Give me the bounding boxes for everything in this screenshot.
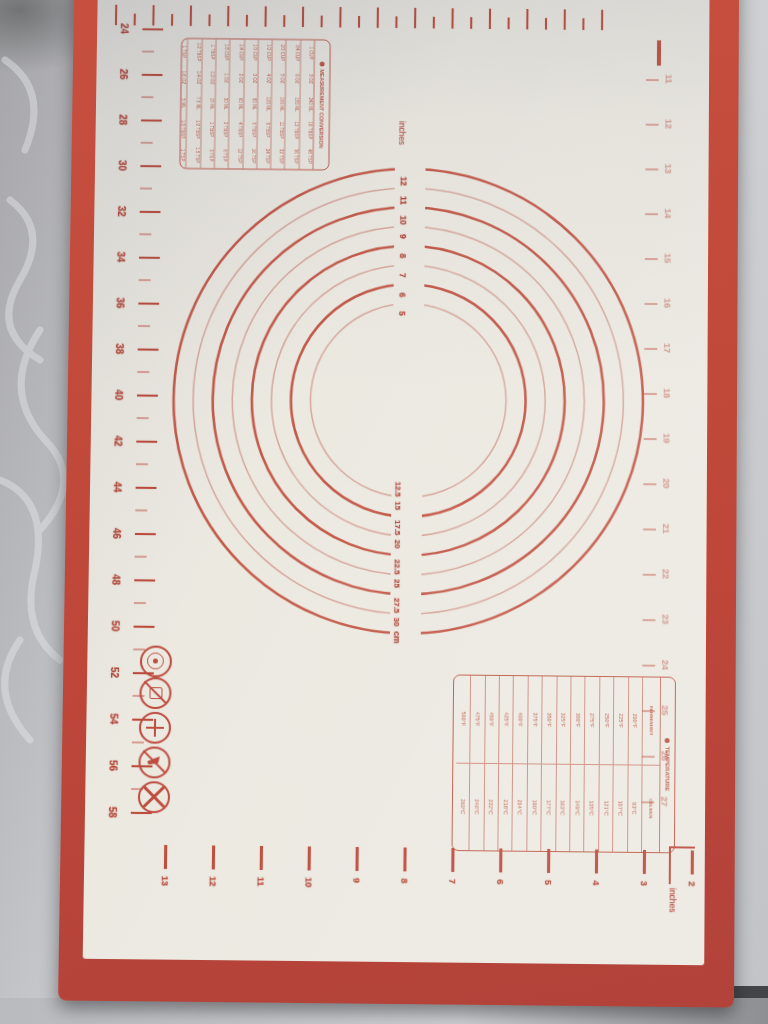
left-ruler-number: 34 bbox=[115, 252, 126, 263]
measurement-cell: 4 OZ bbox=[258, 65, 271, 91]
measurement-cell: 2/3 CUP bbox=[273, 40, 286, 66]
left-ruler-number: 24 bbox=[119, 23, 130, 34]
left-ruler-halftick bbox=[133, 648, 145, 650]
measurement-cell: 16 TBSP bbox=[300, 117, 313, 143]
right-ruler-tick bbox=[643, 574, 656, 576]
measurement-row: 1 TBSP1/2 OZ15 ML1 TBSP3 TSP bbox=[200, 39, 216, 168]
right-ruler-number: 15 bbox=[663, 253, 673, 263]
top-ruler-tick bbox=[283, 15, 285, 27]
left-ruler-tick bbox=[141, 119, 162, 122]
temperature-row: 500°F260°C bbox=[455, 675, 470, 850]
circles-unit-inches-label: inches bbox=[397, 121, 407, 145]
circle-cm-label: 15 bbox=[393, 501, 402, 510]
temperature-cell: 500°F bbox=[456, 675, 470, 763]
circle-cm-label: 30 bbox=[392, 618, 401, 627]
temperature-row: 450°F232°C bbox=[483, 676, 499, 851]
left-ruler-number: 30 bbox=[117, 160, 128, 171]
bottom-ruler-number: 12 bbox=[208, 876, 218, 886]
bottom-ruler-number: 6 bbox=[495, 879, 505, 884]
measurement-cell: 16 TSP bbox=[243, 143, 256, 169]
temperature-cell: 107°C bbox=[613, 765, 627, 852]
top-ruler-tick bbox=[321, 16, 323, 28]
left-ruler-halftick bbox=[135, 556, 147, 558]
measurement-row: 1 CUP8 OZ240 ML16 TBSP48 TSP bbox=[298, 40, 314, 169]
temperature-cell: 93°C bbox=[628, 765, 642, 852]
left-ruler-tick bbox=[131, 765, 152, 768]
bottom-ruler-tick bbox=[164, 845, 167, 869]
left-ruler-number: 56 bbox=[108, 760, 119, 771]
top-ruler-tick bbox=[601, 10, 603, 30]
top-ruler-tick bbox=[564, 9, 566, 29]
temperature-cell: 190°C bbox=[527, 764, 541, 851]
measurement-cell: 24 TSP bbox=[257, 143, 270, 169]
top-ruler-tick bbox=[489, 9, 491, 29]
right-ruler-tick bbox=[643, 528, 656, 530]
bottom-ruler-number: 5 bbox=[543, 880, 553, 885]
top-ruler-tick bbox=[377, 7, 379, 27]
top-ruler-end-mark bbox=[657, 40, 661, 65]
temperature-row: 250°F121°C bbox=[598, 677, 614, 852]
top-ruler-tick bbox=[302, 7, 304, 27]
measurement-cell: 3/4 CUP bbox=[287, 40, 300, 66]
right-ruler-tick bbox=[642, 710, 655, 712]
temperature-cell: 149°C bbox=[570, 764, 584, 851]
temperature-row: 475°F246°C bbox=[469, 676, 485, 851]
bottom-ruler-tick bbox=[355, 847, 358, 871]
measurement-row: 2/3 CUP5 OZ160 ML11 TBSP32 TSP bbox=[270, 40, 286, 169]
temperature-row: 375°F190°C bbox=[526, 676, 542, 851]
top-ruler-tick bbox=[265, 6, 267, 26]
right-ruler-number: 18 bbox=[662, 388, 672, 398]
left-ruler-halftick bbox=[139, 233, 151, 235]
top-ruler-tick bbox=[171, 14, 173, 26]
temperature-cell: 121°C bbox=[599, 765, 613, 852]
left-ruler-halftick bbox=[135, 509, 147, 511]
temperature-cell: 325°F bbox=[557, 677, 571, 765]
measurement-cell: 1 TBSP bbox=[201, 116, 214, 142]
measurement-cell: 1/4 OZ bbox=[188, 65, 201, 91]
right-ruler-number: 11 bbox=[664, 74, 674, 83]
temperature-row: 275°F135°C bbox=[584, 677, 600, 852]
left-ruler-tick bbox=[140, 211, 161, 214]
left-ruler-number: 36 bbox=[115, 297, 126, 308]
circle-cm-label: 25 bbox=[392, 579, 401, 588]
top-ruler-tick bbox=[545, 18, 547, 30]
right-ruler-tick bbox=[645, 258, 658, 260]
right-ruler-number: 17 bbox=[662, 343, 672, 353]
left-ruler-tick bbox=[134, 626, 155, 629]
left-ruler-tick bbox=[136, 487, 157, 490]
top-ruler-tick bbox=[414, 8, 416, 28]
left-ruler-tick bbox=[131, 812, 152, 815]
bottom-ruler-number: 7 bbox=[447, 879, 457, 884]
right-ruler-tick bbox=[644, 393, 657, 395]
right-ruler-number: 16 bbox=[662, 298, 672, 308]
right-ruler-tick bbox=[643, 619, 656, 621]
right-ruler-tick bbox=[644, 438, 657, 440]
bottom-ruler-unit-label: inches bbox=[668, 888, 678, 913]
right-ruler-number: 14 bbox=[663, 208, 673, 218]
left-ruler-number: 52 bbox=[109, 667, 120, 678]
right-ruler-number: 25 bbox=[660, 705, 670, 715]
top-ruler-tick bbox=[208, 14, 210, 26]
left-ruler-number: 54 bbox=[108, 713, 119, 724]
circle-cm-label: 20 bbox=[393, 540, 402, 549]
circle-inch-label: 7 bbox=[398, 273, 408, 278]
bottom-ruler-tick bbox=[308, 847, 311, 871]
left-ruler-halftick bbox=[137, 417, 149, 419]
circle-inch-label: 10 bbox=[398, 215, 408, 224]
temperature-cell: 218°C bbox=[498, 764, 512, 851]
measurement-cell: 1.5 TSP bbox=[187, 142, 200, 168]
measurement-cell: 1/2 OZ bbox=[202, 65, 215, 91]
mat-field: inches cm MEASUREMENT CONVERSION 1 CUP8 … bbox=[83, 0, 710, 965]
temperature-cell: 163°C bbox=[556, 764, 570, 851]
measurement-table-title-row: MEASUREMENT CONVERSION bbox=[313, 40, 330, 169]
measurement-cell: 32 TSP bbox=[271, 143, 284, 169]
temperature-cell: 232°C bbox=[484, 763, 498, 850]
top-ruler-tick bbox=[582, 18, 584, 30]
left-ruler-tick bbox=[135, 533, 156, 536]
measurement-row: 1/2 CUP4 OZ120 ML8 TBSP24 TSP bbox=[256, 40, 272, 169]
circle-inch-label: 6 bbox=[397, 292, 407, 297]
measurement-cell: 160 ML bbox=[272, 91, 285, 117]
measurement-cell: 1/3 TBSP bbox=[173, 116, 186, 142]
left-ruler-tick bbox=[132, 719, 153, 722]
measurement-row: 1/4 CUP2 OZ60 ML4 TBSP12 TSP bbox=[228, 39, 244, 168]
measurement-cell: 240 ML bbox=[300, 92, 313, 118]
left-ruler-number: 38 bbox=[114, 343, 125, 354]
cup-icon bbox=[320, 61, 325, 66]
bottom-ruler-number: 10 bbox=[303, 877, 313, 887]
left-ruler-number: 46 bbox=[111, 528, 122, 539]
top-ruler-tick bbox=[152, 5, 154, 25]
temperature-cell: 246°C bbox=[470, 763, 484, 850]
left-ruler-number: 58 bbox=[107, 807, 118, 818]
top-ruler-tick bbox=[470, 17, 472, 29]
temperature-cell: 375°F bbox=[528, 676, 542, 764]
bottom-ruler-number: 9 bbox=[351, 878, 361, 883]
temperature-table-body: 200°F93°C225°F107°C250°F121°C275°F135°C3… bbox=[455, 675, 642, 851]
measurement-cell: 7.5 ML bbox=[187, 91, 200, 117]
circles-unit-cm-label: cm bbox=[392, 631, 402, 643]
temperature-row: 200°F93°C bbox=[627, 677, 642, 852]
measurement-cell: 60 ML bbox=[230, 91, 243, 117]
measurement-table-body: 1 CUP8 OZ240 ML16 TBSP48 TSP3/4 CUP6 OZ1… bbox=[172, 39, 314, 170]
temperature-cell: 475°F bbox=[471, 676, 485, 764]
top-ruler-tick bbox=[339, 7, 341, 27]
measurement-cell: 1/8 CUP bbox=[216, 39, 229, 65]
measurement-cell: 5 ML bbox=[173, 90, 186, 116]
temperature-cell: 225°F bbox=[614, 677, 628, 765]
corner-bracket-horizontal bbox=[669, 846, 695, 849]
left-ruler-tick bbox=[136, 441, 157, 444]
temperature-cell: 275°F bbox=[585, 677, 599, 765]
temperature-table: TEMPERATURE FAHRENHEIT CELSIUS 200°F93°C… bbox=[451, 674, 675, 853]
bottom-ruler-tick bbox=[499, 849, 502, 873]
circle-inch-label: 9 bbox=[398, 234, 408, 239]
right-ruler-number: 27 bbox=[659, 797, 669, 807]
measurement-cell: 6 TSP bbox=[215, 142, 228, 168]
top-ruler-tick bbox=[395, 16, 397, 28]
pastry-mat: inches cm MEASUREMENT CONVERSION 1 CUP8 … bbox=[58, 0, 739, 1008]
measurement-table-title: MEASUREMENT CONVERSION bbox=[318, 69, 325, 148]
right-ruler-number: 12 bbox=[663, 119, 673, 129]
measurement-cell: 1 TSP bbox=[172, 142, 185, 168]
corner-bracket-vertical bbox=[669, 846, 672, 884]
left-ruler-tick bbox=[140, 165, 161, 168]
right-ruler-tick bbox=[646, 79, 659, 81]
measurement-cell: 1/4 CUP bbox=[230, 39, 243, 65]
temperature-row: 325°F163°C bbox=[555, 677, 571, 852]
right-ruler-tick bbox=[643, 483, 656, 485]
top-ruler-tick bbox=[190, 6, 192, 26]
left-ruler-number: 42 bbox=[112, 435, 123, 446]
left-ruler-halftick bbox=[132, 741, 144, 743]
right-ruler-number: 22 bbox=[661, 569, 671, 579]
measurement-cell: 48 TSP bbox=[299, 143, 312, 169]
measurement-cell: 6 OZ bbox=[286, 66, 299, 92]
top-ruler-tick bbox=[451, 8, 453, 28]
bottom-ruler-number: 3 bbox=[639, 881, 649, 886]
bottom-ruler-number: 8 bbox=[399, 878, 409, 883]
top-ruler-tick bbox=[508, 18, 510, 30]
measurement-row: 1/3 CUP3 OZ80 ML5 TBSP16 TSP bbox=[242, 40, 258, 169]
left-ruler-tick bbox=[139, 257, 160, 260]
measurement-cell: 180 ML bbox=[286, 92, 299, 118]
top-ruler-tick bbox=[115, 5, 117, 25]
bottom-ruler-tick bbox=[403, 848, 406, 872]
measurement-table: MEASUREMENT CONVERSION 1 CUP8 OZ240 ML16… bbox=[179, 38, 330, 171]
bottom-ruler-number: 13 bbox=[160, 876, 170, 886]
measurement-cell: 1/2 TBSP bbox=[188, 39, 201, 65]
right-ruler-tick bbox=[645, 168, 658, 170]
temperature-cell: 450°F bbox=[485, 676, 499, 764]
left-ruler-tick bbox=[137, 395, 158, 398]
top-ruler-tick bbox=[227, 6, 229, 26]
left-ruler-tick bbox=[142, 74, 163, 77]
temperature-cell: 300°F bbox=[571, 677, 585, 765]
right-ruler-number: 21 bbox=[661, 524, 671, 534]
bottom-ruler-tick bbox=[260, 846, 263, 870]
bottom-ruler-number: 2 bbox=[687, 881, 697, 886]
temperature-row: 425°F218°C bbox=[497, 676, 513, 851]
measurement-cell: 15 ML bbox=[201, 91, 214, 117]
right-ruler-number: 20 bbox=[661, 478, 671, 488]
thermometer-icon bbox=[665, 738, 670, 743]
measurement-cell: 12 TSP bbox=[229, 143, 242, 169]
bottom-ruler-tick bbox=[595, 850, 598, 874]
circle-inch-label: 5 bbox=[397, 311, 407, 316]
right-ruler-number: 13 bbox=[663, 164, 673, 174]
circle-inch-label: 12 bbox=[399, 177, 409, 186]
prohibition-x-icon bbox=[138, 781, 170, 813]
measurement-row: 3/4 CUP6 OZ180 ML12 TBSP36 TSP bbox=[284, 40, 300, 169]
right-ruler-tick bbox=[641, 801, 654, 803]
measurement-cell: 1/2 TBSP bbox=[187, 116, 200, 142]
left-ruler-halftick bbox=[138, 325, 150, 327]
measurement-cell: 36 TSP bbox=[285, 143, 298, 169]
left-ruler-number: 40 bbox=[113, 389, 124, 400]
measurement-cell: 11 TBSP bbox=[272, 117, 285, 143]
circle-cm-label: 27.5 bbox=[392, 598, 401, 613]
right-ruler-number: 19 bbox=[661, 433, 671, 443]
measurement-cell: 8 OZ bbox=[300, 66, 313, 92]
top-ruler-tick bbox=[526, 9, 528, 29]
measurement-cell: 80 ML bbox=[244, 91, 257, 117]
bottom-ruler-tick bbox=[451, 848, 454, 872]
temperature-row: 225°F107°C bbox=[612, 677, 628, 852]
measurement-row: 1/8 CUP1 OZ30 ML2 TBSP6 TSP bbox=[214, 39, 230, 168]
measurement-cell: 5 TBSP bbox=[243, 117, 256, 143]
circle-inch-label: 8 bbox=[398, 253, 408, 258]
right-ruler-tick bbox=[642, 665, 655, 667]
left-ruler-number: 26 bbox=[118, 69, 129, 80]
top-ruler-tick bbox=[433, 17, 435, 29]
no-knife-icon bbox=[138, 746, 170, 778]
measurement-cell: 4 TBSP bbox=[229, 117, 242, 143]
circle-cm-label: 17.5 bbox=[393, 520, 402, 535]
temperature-cell: 135°C bbox=[585, 764, 599, 851]
circle-inch-label: 11 bbox=[398, 196, 408, 205]
left-ruler-halftick bbox=[137, 371, 149, 373]
temperature-cell: 260°C bbox=[455, 763, 469, 850]
left-ruler-halftick bbox=[136, 463, 148, 465]
left-ruler-tick bbox=[134, 579, 155, 582]
measurement-cell: 3 OZ bbox=[244, 65, 257, 91]
measurement-row: 1/2 TBSP1/4 OZ7.5 ML1/2 TBSP1.5 TSP bbox=[186, 39, 202, 168]
top-ruler-tick bbox=[134, 14, 136, 26]
left-ruler-tick bbox=[138, 303, 159, 306]
bottom-ruler-tick bbox=[547, 849, 550, 873]
temperature-row: 300°F149°C bbox=[569, 677, 585, 852]
bottom-ruler-tick bbox=[212, 846, 215, 870]
bottom-ruler-number: 4 bbox=[591, 880, 601, 885]
right-ruler-tick bbox=[646, 124, 659, 126]
top-ruler-tick bbox=[246, 15, 248, 27]
left-ruler-halftick bbox=[141, 142, 153, 144]
bottom-ruler-tick bbox=[691, 851, 694, 875]
right-ruler-number: 23 bbox=[660, 614, 670, 624]
temperature-row: 350°F177°C bbox=[541, 676, 557, 851]
celsius-header: CELSIUS bbox=[642, 765, 659, 852]
temperature-cell: 400°F bbox=[514, 676, 528, 764]
left-ruler-number: 48 bbox=[110, 574, 121, 585]
measurement-cell: 1 TSP bbox=[174, 39, 187, 65]
measurement-cell: 5 OZ bbox=[272, 66, 285, 92]
temperature-row: 400°F204°C bbox=[512, 676, 528, 851]
circle-cm-label: 12.5 bbox=[393, 481, 402, 496]
no-bakeware-icon bbox=[139, 677, 171, 709]
measurement-cell: 1 TBSP bbox=[202, 39, 215, 65]
right-ruler-number: 24 bbox=[660, 660, 670, 670]
measurement-cell: 3 TSP bbox=[201, 142, 214, 168]
measurement-cell: 30 ML bbox=[215, 91, 228, 117]
measurement-cell: 8 TBSP bbox=[257, 117, 270, 143]
left-ruler-halftick bbox=[134, 602, 146, 604]
measurement-cell: 12 TBSP bbox=[286, 117, 299, 143]
measurement-cell: 2 TBSP bbox=[215, 117, 228, 143]
measurement-cell: 2 OZ bbox=[230, 65, 243, 91]
measurement-cell: 1/2 CUP bbox=[258, 40, 271, 66]
measurement-cell: 1/6 OZ bbox=[174, 65, 187, 91]
left-ruler-halftick bbox=[141, 96, 153, 98]
right-ruler-tick bbox=[645, 303, 658, 305]
measurement-cell: 1 CUP bbox=[301, 40, 314, 66]
photo-of-pastry-mat: inches cm MEASUREMENT CONVERSION 1 CUP8 … bbox=[0, 0, 768, 1024]
left-ruler-number: 50 bbox=[110, 620, 121, 631]
bottom-ruler-tick bbox=[643, 850, 646, 874]
left-ruler-halftick bbox=[139, 279, 151, 281]
circle-cm-label: 22.5 bbox=[393, 559, 402, 574]
left-ruler-number: 32 bbox=[116, 206, 127, 217]
temperature-cell: 350°F bbox=[542, 676, 556, 764]
measurement-cell: 1 OZ bbox=[216, 65, 229, 91]
measurement-cell: 1/3 CUP bbox=[244, 40, 257, 66]
fahrenheit-header: FAHRENHEIT bbox=[643, 677, 660, 765]
right-ruler-tick bbox=[644, 348, 657, 350]
left-ruler-halftick bbox=[142, 51, 154, 53]
left-ruler-tick bbox=[142, 28, 163, 31]
temperature-cell: 177°C bbox=[542, 764, 556, 851]
right-ruler-tick bbox=[645, 213, 658, 215]
left-ruler-number: 28 bbox=[117, 114, 128, 125]
temperature-table-title-row: TEMPERATURE bbox=[659, 678, 675, 853]
bottom-ruler-number: 11 bbox=[255, 877, 265, 887]
measurement-row: 1 TSP1/6 OZ5 ML1/3 TBSP1 TSP bbox=[172, 39, 187, 168]
whisk-icon bbox=[139, 712, 171, 744]
temperature-cell: 250°F bbox=[600, 677, 614, 765]
left-ruler-number: 44 bbox=[112, 482, 123, 493]
left-ruler-tick bbox=[133, 672, 154, 675]
right-ruler-tick bbox=[642, 756, 655, 758]
right-ruler-number: 26 bbox=[660, 751, 670, 761]
left-ruler-halftick bbox=[140, 187, 152, 189]
temperature-cell: 204°C bbox=[513, 764, 527, 851]
temperature-cell: 425°F bbox=[499, 676, 513, 764]
left-ruler-halftick bbox=[133, 695, 145, 697]
top-ruler-tick bbox=[358, 16, 360, 28]
temperature-cell: 200°F bbox=[628, 677, 642, 765]
left-ruler-halftick bbox=[131, 788, 143, 790]
left-ruler-tick bbox=[138, 349, 159, 352]
measurement-cell: 120 ML bbox=[258, 91, 271, 117]
temperature-table-header: FAHRENHEIT CELSIUS bbox=[641, 677, 660, 852]
